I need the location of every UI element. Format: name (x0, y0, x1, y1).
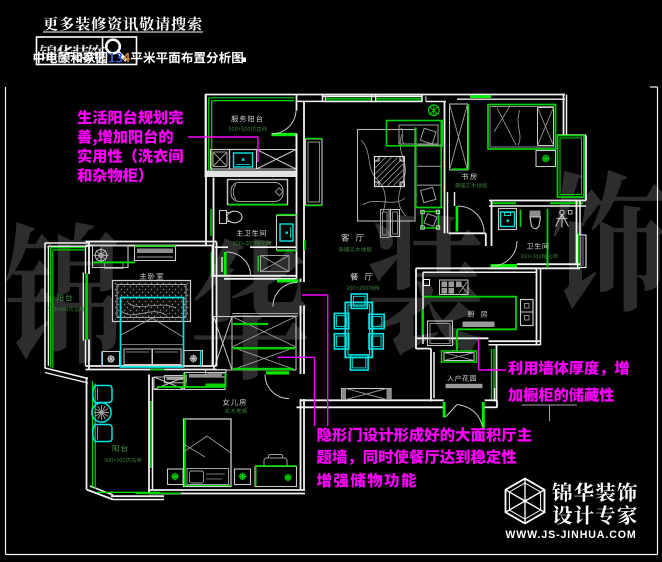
svg-text:WWW.JS-JINHUA.COM: WWW.JS-JINHUA.COM (505, 529, 636, 541)
